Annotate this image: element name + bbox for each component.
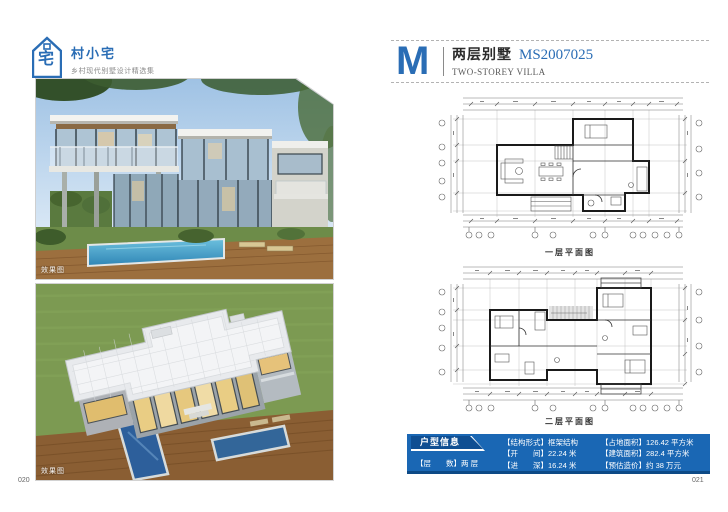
brand-house-icon: 宅 xyxy=(32,36,62,78)
render-photo-front: 效果图 xyxy=(35,78,334,280)
info-structure: 【结构形式】框架结构 xyxy=(503,437,578,448)
info-column-middle: 【结构形式】框架结构 【开 间】22.24 米 【进 深】16.24 米 xyxy=(503,437,578,471)
unit-info-tab: 户型信息 xyxy=(411,436,485,451)
render-photo-aerial: 效果图 xyxy=(35,283,334,481)
villa-title-cn: 两层别墅 xyxy=(452,44,512,64)
info-floors: 【层 数】两 层 xyxy=(416,458,478,469)
first-floor-plan-drawing xyxy=(435,93,705,243)
brand-subtitle: 乡村现代别墅设计精选集 xyxy=(71,66,155,76)
villa-aerial-render-illustration xyxy=(36,284,333,480)
brand-glyph: 宅 xyxy=(38,49,54,71)
villa-title-en: TWO-STOREY VILLA xyxy=(452,67,593,77)
second-floor-plan-drawing xyxy=(435,262,705,412)
info-land-area: 【占地面积】126.42 平方米 xyxy=(601,437,694,448)
right-page-number: 021 xyxy=(692,477,704,484)
catalog-spread: 宅 村小宅 乡村现代别墅设计精选集 xyxy=(0,0,728,512)
header-divider xyxy=(443,47,444,76)
unit-info-tab-label: 户型信息 xyxy=(411,436,483,449)
unit-info-panel: 户型信息 【层 数】两 层 【结构形式】框架结构 【开 间】22.24 米 【进… xyxy=(407,434,710,474)
villa-model-code: MS2007025 xyxy=(519,47,593,64)
info-bay-width: 【开 间】22.24 米 xyxy=(503,448,578,459)
info-depth: 【进 深】16.24 米 xyxy=(503,460,578,471)
brand-title: 村小宅 xyxy=(71,43,155,62)
info-building-area: 【建筑面积】282.4 平方米 xyxy=(601,448,694,459)
first-floor-plan xyxy=(435,93,705,243)
header-bottom-dashed-rule xyxy=(391,82,709,83)
info-estimated-cost: 【预估造价】约 38 万元 xyxy=(601,460,694,471)
brand-block: 宅 村小宅 乡村现代别墅设计精选集 xyxy=(32,36,155,78)
render-label: 效果图 xyxy=(41,265,65,275)
header-titles: 两层别墅 MS2007025 TWO-STOREY VILLA xyxy=(452,44,593,77)
second-floor-plan-caption: 二层平面图 xyxy=(435,416,705,427)
info-column-right: 【占地面积】126.42 平方米 【建筑面积】282.4 平方米 【预估造价】约… xyxy=(601,437,694,471)
header-top-dashed-rule xyxy=(391,40,709,41)
villa-front-render-illustration xyxy=(36,79,333,279)
second-floor-plan xyxy=(435,262,705,412)
m-logo: M xyxy=(396,43,427,79)
first-floor-plan-caption: 一层平面图 xyxy=(435,247,705,258)
left-page-number: 020 xyxy=(18,477,30,484)
render-label: 效果图 xyxy=(41,466,65,476)
